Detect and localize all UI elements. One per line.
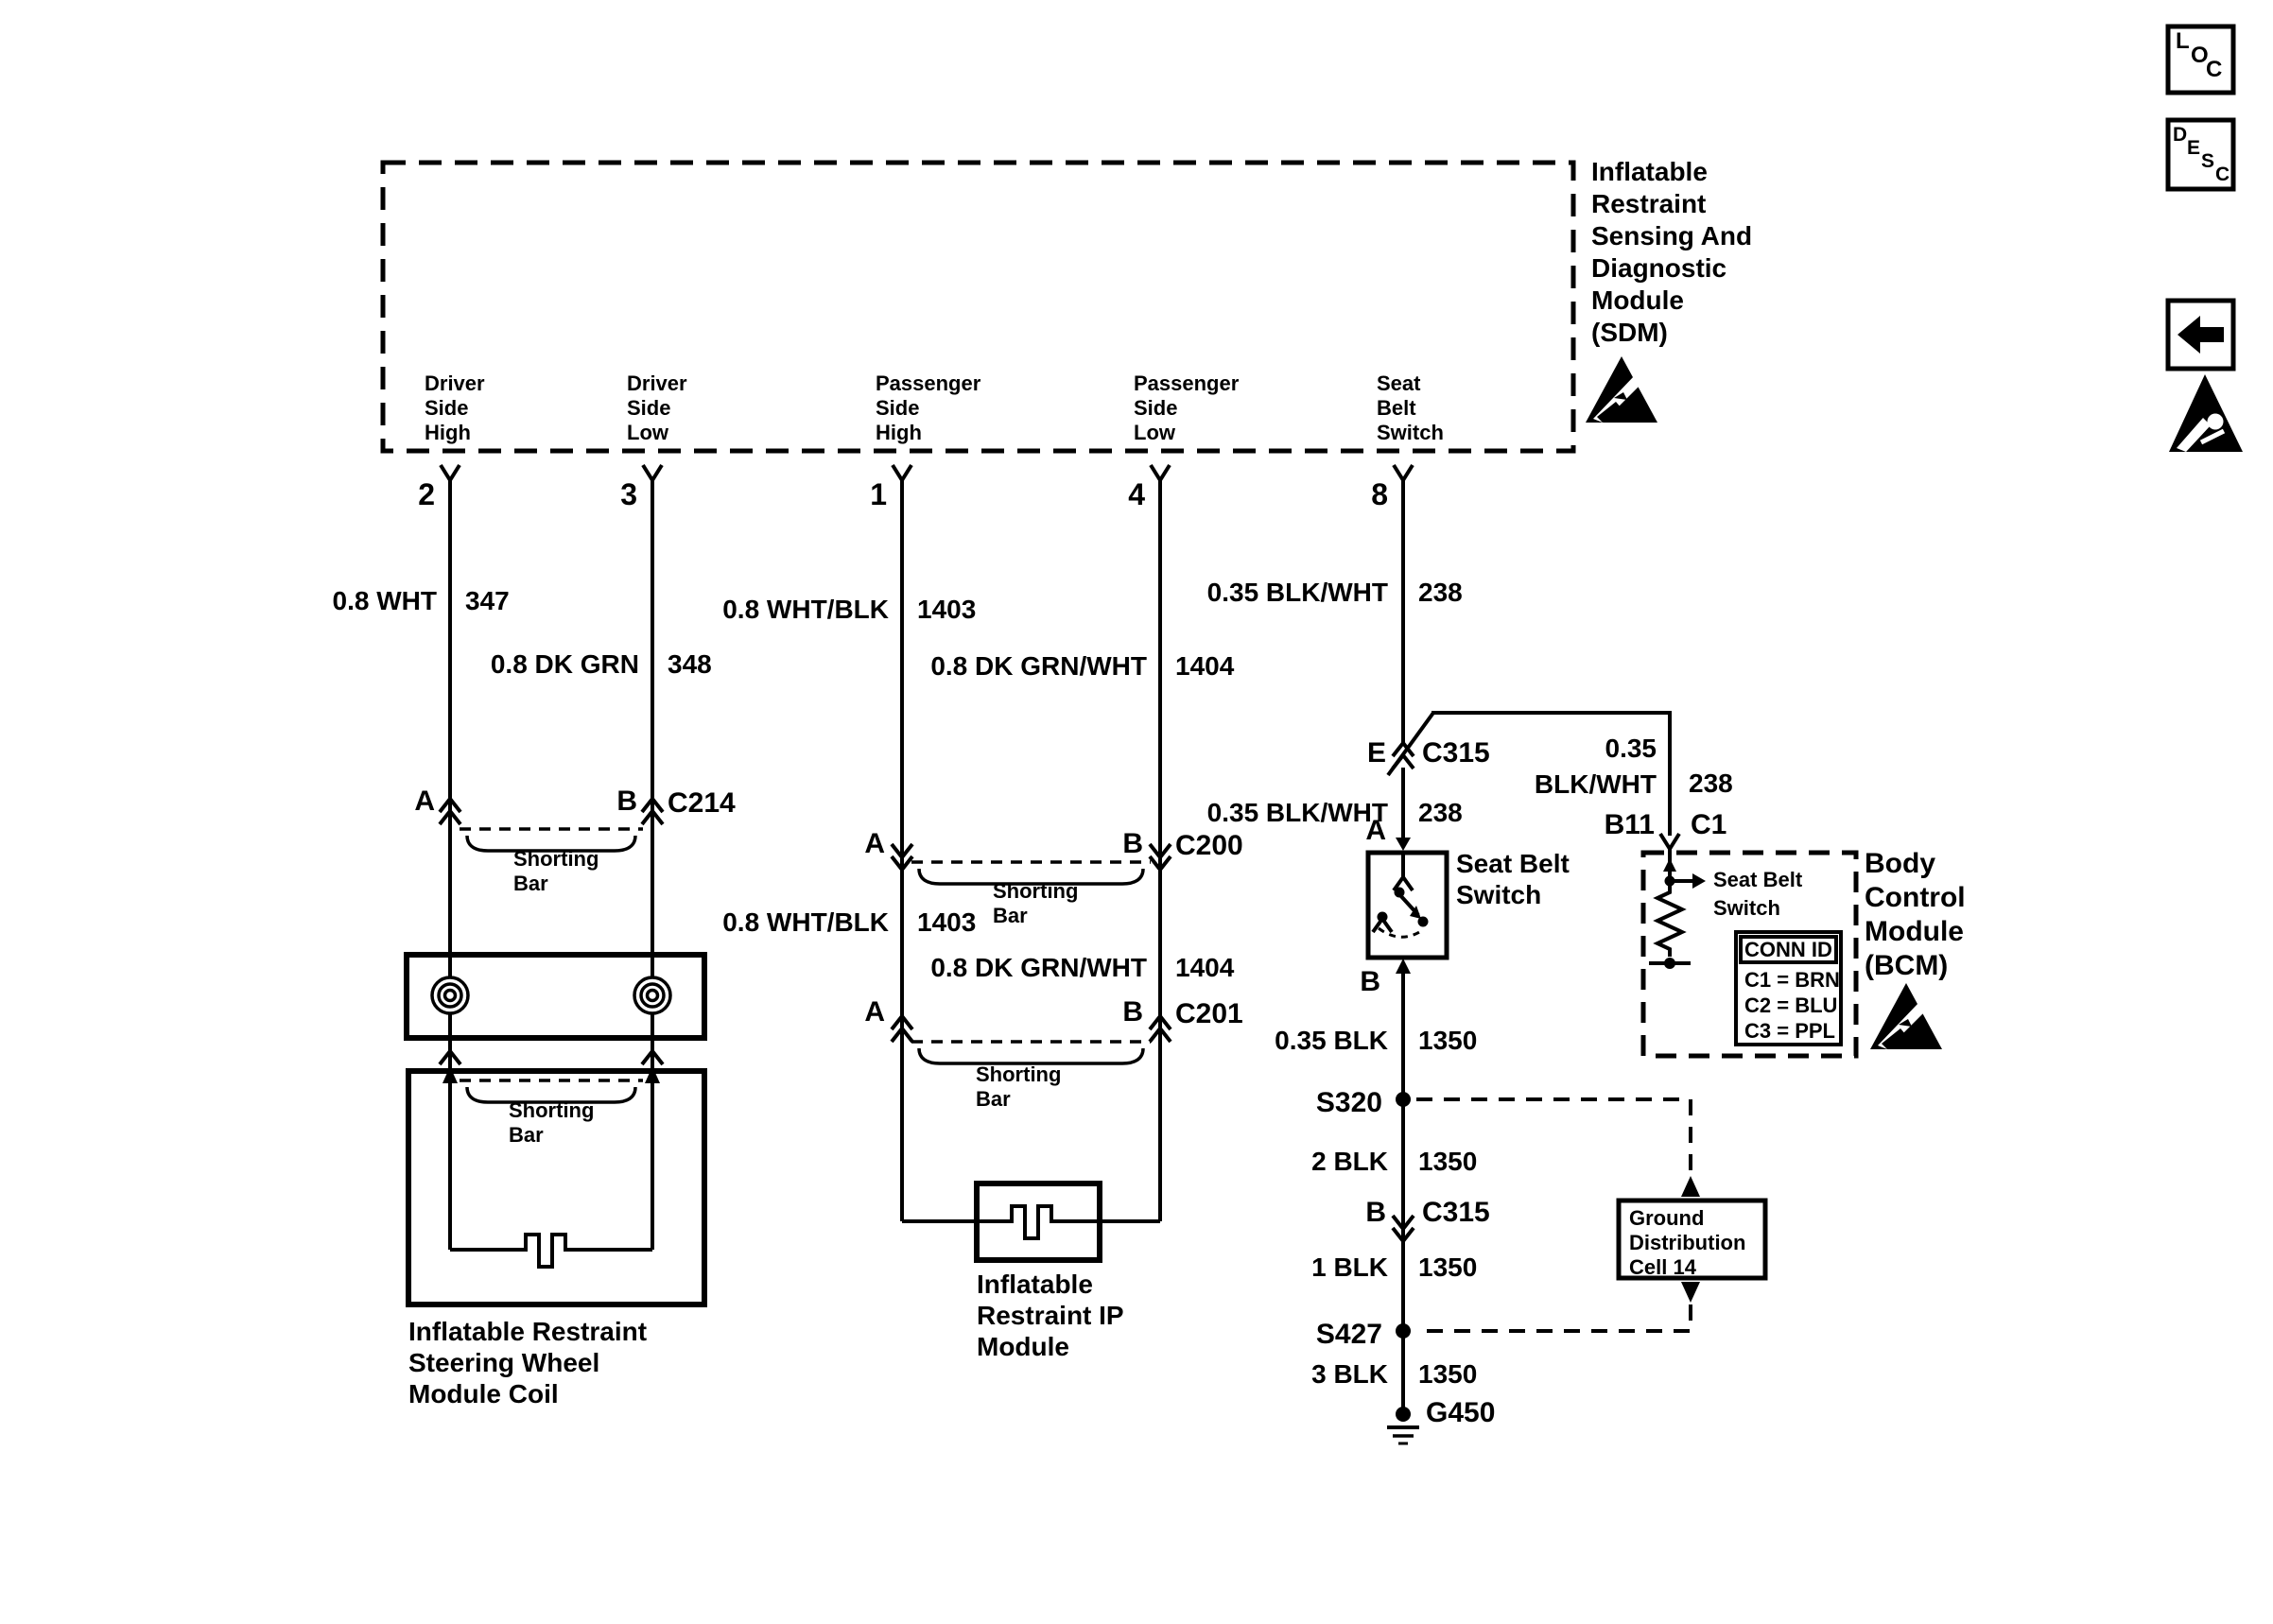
desc-button-letter[interactable]: E [2187,137,2200,160]
circuit-number: 1350 [1418,1252,1477,1283]
wire-gauge-label: 0.8 WHT [153,585,437,616]
connector-id: C201 [1175,998,1243,1030]
loc-button-letter[interactable]: C [2206,58,2222,82]
splice-label: S320 [1288,1087,1382,1119]
arrowhead-up-icon [1681,1176,1700,1197]
circuit-number: 1350 [1418,1358,1477,1390]
desc-button-letter[interactable]: C [2215,164,2230,186]
shorting-bar-label: Shorting Bar [509,1098,594,1148]
splice-label: S427 [1288,1319,1382,1351]
connector-pin-letter: B [1086,828,1143,860]
wire-gauge-label: 3 BLK [1104,1358,1388,1390]
sdm-pin-number: 4 [1088,478,1145,510]
circuit-number: 1350 [1418,1146,1477,1177]
switch-terminal-letter: A [1329,815,1386,847]
airbag-warning-icon [2169,374,2243,452]
arrowhead-right-icon [1692,873,1706,889]
connector-pin-letter: B11 [1560,809,1655,841]
circuit-number: 1403 [917,594,976,625]
connector-pin-letter: B [1086,996,1143,1028]
sdm-pin4-function: Passenger Side Low [1134,371,1239,445]
sdm-pin-number: 8 [1331,478,1388,510]
bcm-internal-switch-label: Seat Belt Switch [1713,866,1802,923]
shorting-bar-label: Shorting Bar [976,1063,1061,1112]
wire-gauge-label: 1 BLK [1104,1252,1388,1283]
steering-squib-icon [450,1235,652,1267]
back-arrow-icon[interactable] [2178,316,2224,354]
ground-label: G450 [1426,1397,1495,1429]
loc-button-letter[interactable]: L [2176,29,2190,54]
circuit-number: 1403 [917,907,976,938]
switch-throw-arc [1379,928,1424,937]
arrowhead-up-icon [1663,858,1676,872]
wire-gauge-label: 0.8 DK GRN [356,648,639,680]
switch-terminal-letter: B [1324,966,1380,998]
wire-gauge-label: 0.35 BLK/WHT [1104,577,1388,608]
sdm-module-label: Inflatable Restraint Sensing And Diagnos… [1591,156,1752,349]
connector-pin-letter: B [1329,1197,1386,1229]
arrowhead-down-icon [1396,838,1411,851]
arrowhead-up-icon [1396,959,1411,974]
ip-module-label: Inflatable Restraint IP Module [977,1269,1124,1362]
circuit-number: 347 [465,585,510,616]
splice-s427-dot [1396,1323,1411,1339]
ground-distribution-label: Ground Distribution Cell 14 [1629,1206,1745,1280]
connector-pin-letter: A [378,786,435,818]
splice-s320-dot [1396,1092,1411,1107]
steering-coil-label: Inflatable Restraint Steering Wheel Modu… [408,1316,647,1409]
sdm-pin2-function: Driver Side High [425,371,485,445]
connector-id: C1 [1691,809,1726,841]
circuit-number: 1404 [1175,952,1234,983]
wire-gauge-label: 0.8 DK GRN/WHT [832,952,1147,983]
connector-pin-letter: B [581,786,637,818]
sdm-pin1-function: Passenger Side High [876,371,980,445]
conn-id-header: CONN ID [1736,938,1841,962]
wire-gauge-label: 0.8 DK GRN/WHT [832,650,1147,682]
ground-g450-dot [1396,1407,1411,1422]
connector-pin-letter: A [828,996,885,1028]
bcm-resistor-icon [1657,884,1682,957]
sdm-pin3-function: Driver Side Low [627,371,687,445]
sdm-pin-number: 2 [378,478,435,510]
ip-squib-icon [902,1206,1160,1238]
circuit-number: 348 [668,648,712,680]
circuit-number: 1350 [1418,1025,1477,1056]
ground-symbol-icon [1387,1427,1419,1443]
bcm-module-label: Body Control Module (BCM) [1865,847,1966,983]
connector-id: C315 [1422,737,1490,769]
wire-gauge-label: 0.35 BLK/WHT [1373,731,1657,803]
sdm-pin8-function: Seat Belt Switch [1377,371,1444,445]
connector-id: C200 [1175,830,1243,862]
circuit-number: 1404 [1175,650,1234,682]
shorting-bar-label: Shorting Bar [513,847,599,896]
conn-id-rows: C1 = BRN C2 = BLU C3 = PPL [1744,967,1840,1044]
sdm-pin-number: 1 [830,478,887,510]
circuit-number: 238 [1418,577,1463,608]
wiring-diagram-page: Inflatable Restraint Sensing And Diagnos… [0,0,2273,1624]
connector-pin-letter: A [828,828,885,860]
seat-belt-switch-label: Seat Belt Switch [1456,848,1570,910]
connector-pin-letter: E [1329,737,1386,769]
wire-gauge-label: 0.8 WHT/BLK [605,907,889,938]
desc-button-letter[interactable]: S [2201,150,2214,173]
arrowhead-down-icon [1681,1282,1700,1303]
wire-gauge-label: 2 BLK [1104,1146,1388,1177]
desc-button-letter[interactable]: D [2173,124,2187,147]
connector-id: C214 [668,787,736,820]
connector-id: C315 [1422,1197,1490,1229]
wire-gauge-label: 0.35 BLK [1104,1025,1388,1056]
wire-gauge-label: 0.8 WHT/BLK [605,594,889,625]
sdm-pin-number: 3 [581,478,637,510]
circuit-number: 238 [1689,768,1733,799]
shorting-bar-label: Shorting Bar [993,879,1078,928]
